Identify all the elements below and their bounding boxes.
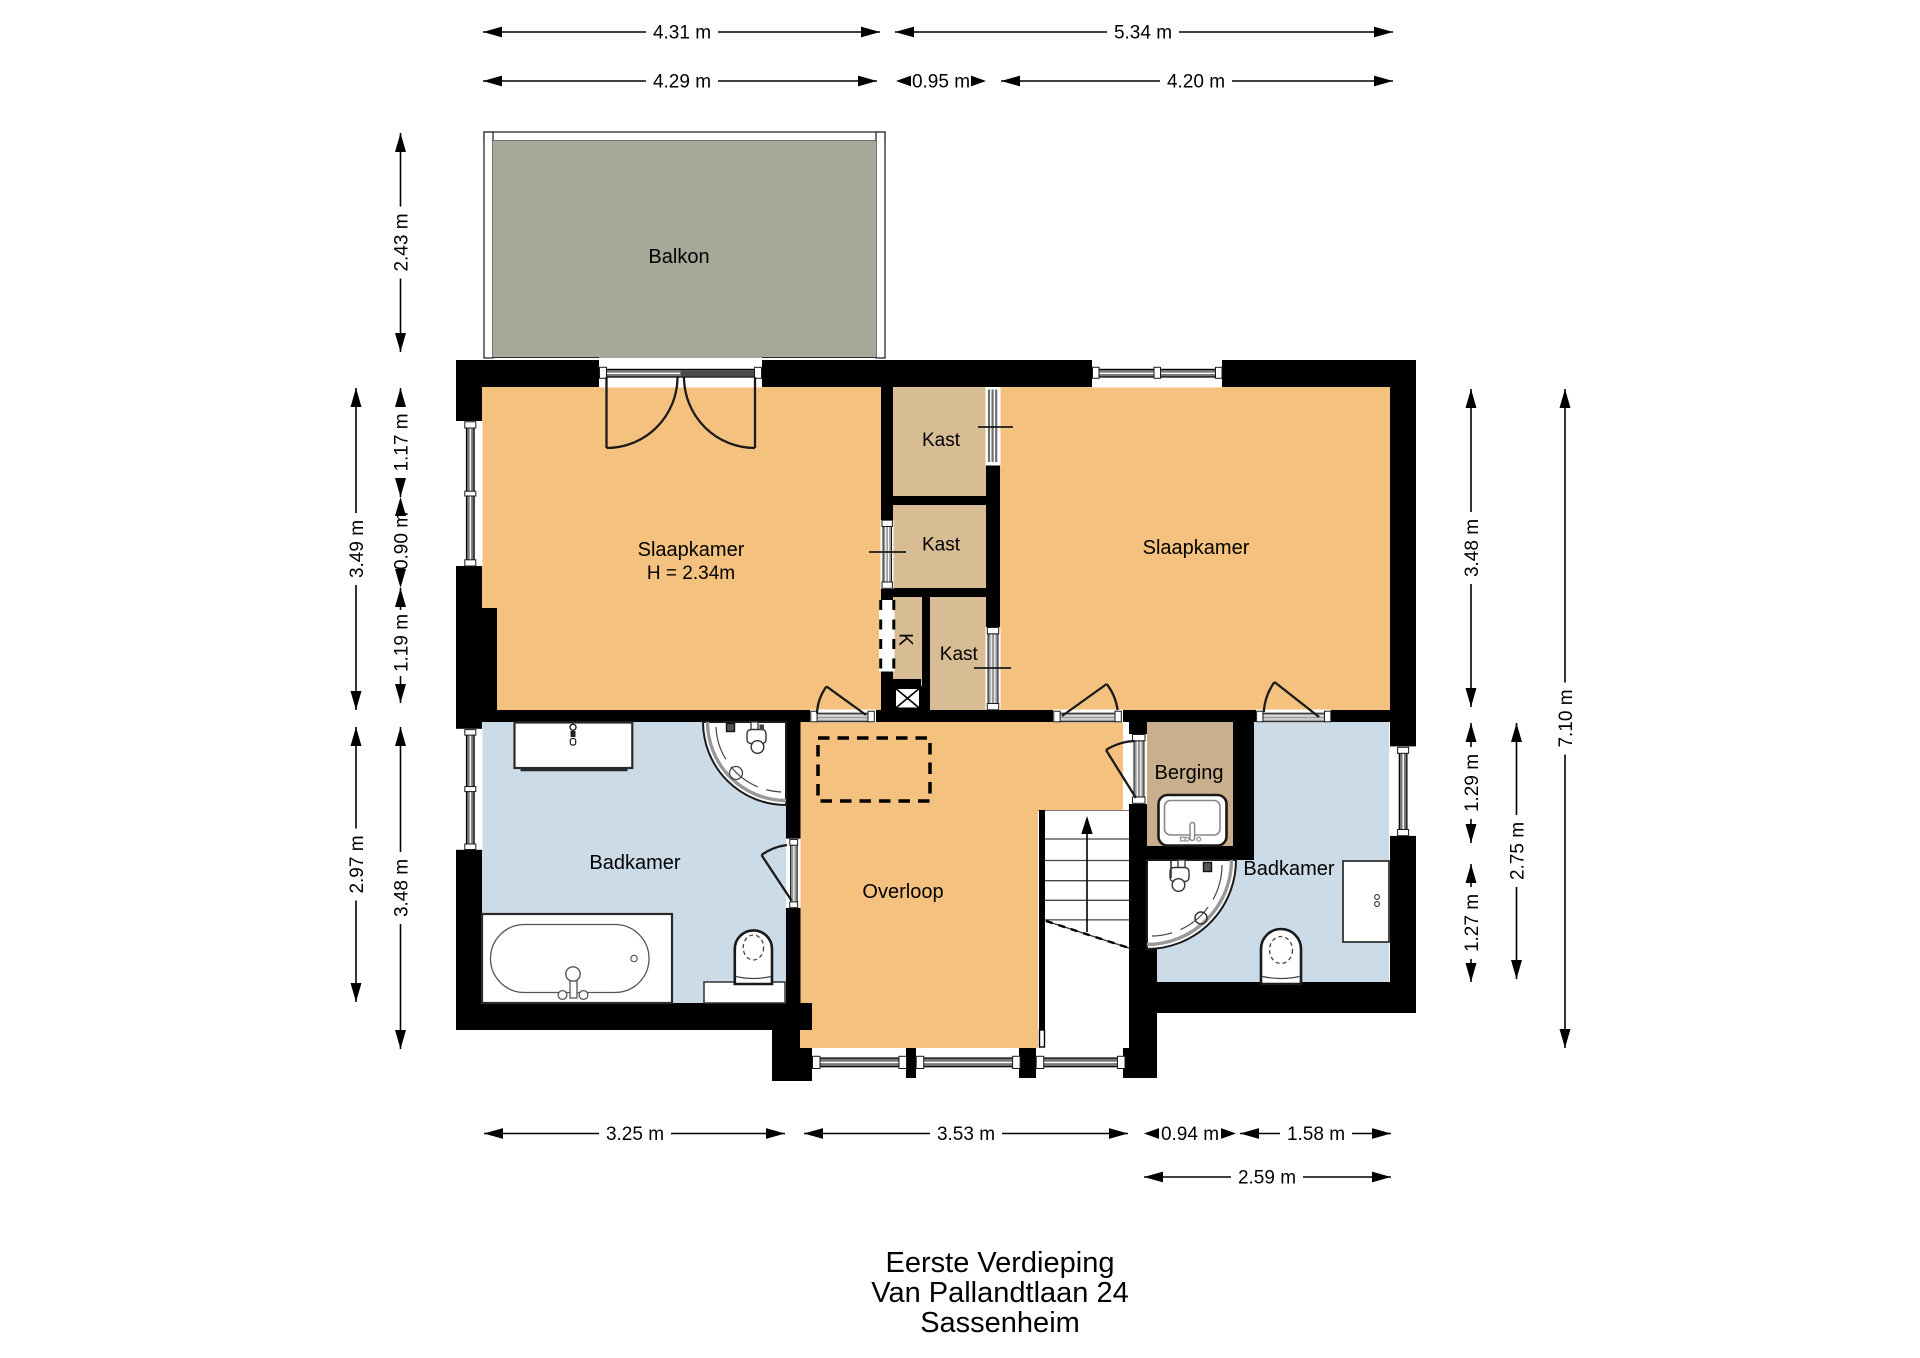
svg-text:3.53 m: 3.53 m [937,1124,995,1145]
svg-text:Eerste Verdieping: Eerste Verdieping [886,1247,1115,1279]
svg-text:Kast: Kast [922,430,961,451]
svg-text:1.19 m: 1.19 m [391,614,412,672]
svg-text:K: K [895,633,916,646]
svg-text:Kast: Kast [940,644,979,665]
svg-text:Badkamer: Badkamer [1243,858,1334,880]
svg-text:0.90 m: 0.90 m [391,512,412,570]
svg-text:Slaapkamer: Slaapkamer [638,539,745,561]
svg-text:3.48 m: 3.48 m [391,859,412,917]
svg-text:2.43 m: 2.43 m [391,213,412,271]
svg-text:7.10 m: 7.10 m [1556,689,1577,747]
svg-text:Van Pallandtlaan 24: Van Pallandtlaan 24 [871,1277,1128,1309]
svg-text:2.75 m: 2.75 m [1507,822,1528,880]
svg-text:3.48 m: 3.48 m [1462,519,1483,577]
svg-text:Overloop: Overloop [862,881,943,903]
svg-text:0.95 m: 0.95 m [912,72,970,93]
svg-text:4.29 m: 4.29 m [653,72,711,93]
svg-text:Sassenheim: Sassenheim [920,1307,1080,1339]
svg-text:1.58 m: 1.58 m [1287,1124,1345,1145]
svg-text:2.59 m: 2.59 m [1238,1168,1296,1189]
svg-text:3.25 m: 3.25 m [606,1124,664,1145]
svg-text:H = 2.34m: H = 2.34m [647,563,735,584]
svg-text:2.97 m: 2.97 m [347,835,368,893]
svg-text:1.17 m: 1.17 m [391,413,412,471]
svg-text:Balkon: Balkon [648,246,709,268]
svg-text:Kast: Kast [922,535,961,556]
svg-text:1.29 m: 1.29 m [1462,754,1483,812]
svg-text:3.49 m: 3.49 m [347,520,368,578]
svg-text:1.27 m: 1.27 m [1462,894,1483,952]
svg-text:Slaapkamer: Slaapkamer [1143,537,1250,559]
svg-text:0.94 m: 0.94 m [1161,1124,1219,1145]
svg-text:4.31 m: 4.31 m [653,23,711,44]
svg-text:4.20 m: 4.20 m [1167,72,1225,93]
svg-text:Berging: Berging [1155,762,1224,784]
svg-text:5.34 m: 5.34 m [1114,23,1172,44]
svg-text:Badkamer: Badkamer [589,852,680,874]
